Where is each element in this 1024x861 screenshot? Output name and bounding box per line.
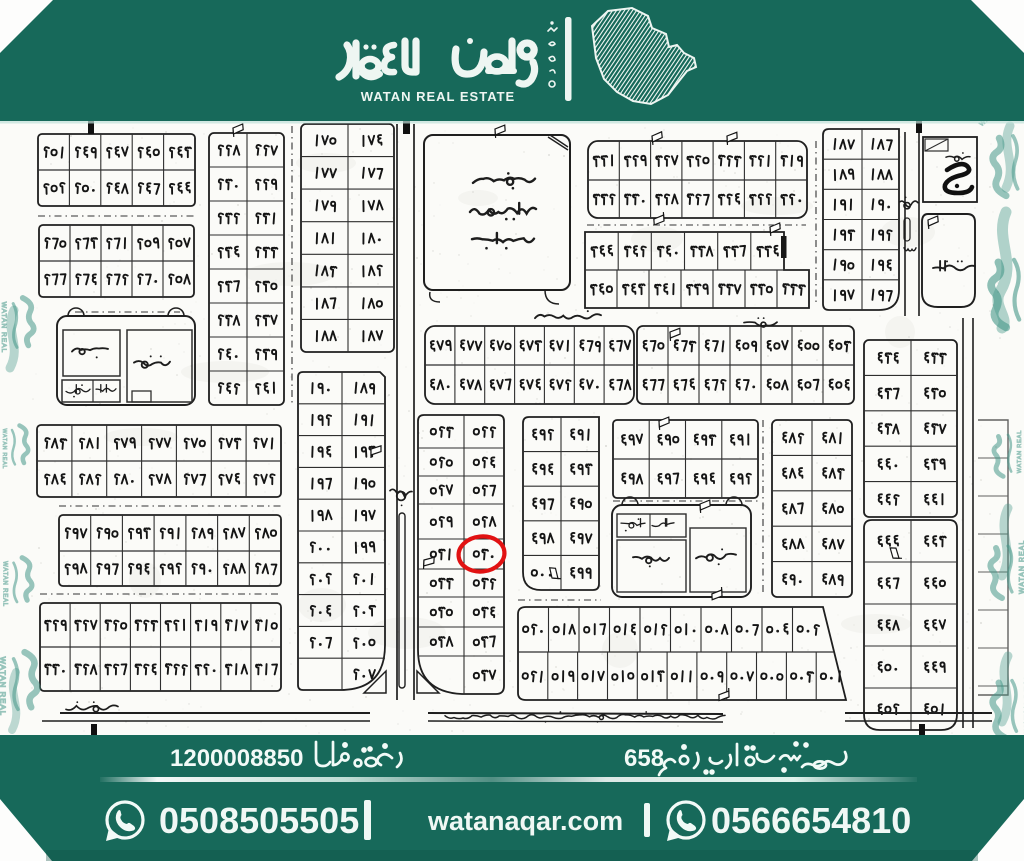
svg-text:1200008850: 1200008850 [170, 745, 303, 772]
svg-text:watanaqar.com: watanaqar.com [427, 806, 623, 836]
svg-text:0508505505: 0508505505 [159, 800, 359, 841]
svg-text:0566654810: 0566654810 [711, 800, 911, 841]
svg-text:658: 658 [624, 745, 664, 772]
svg-text:WATAN REAL ESTATE: WATAN REAL ESTATE [361, 89, 515, 104]
